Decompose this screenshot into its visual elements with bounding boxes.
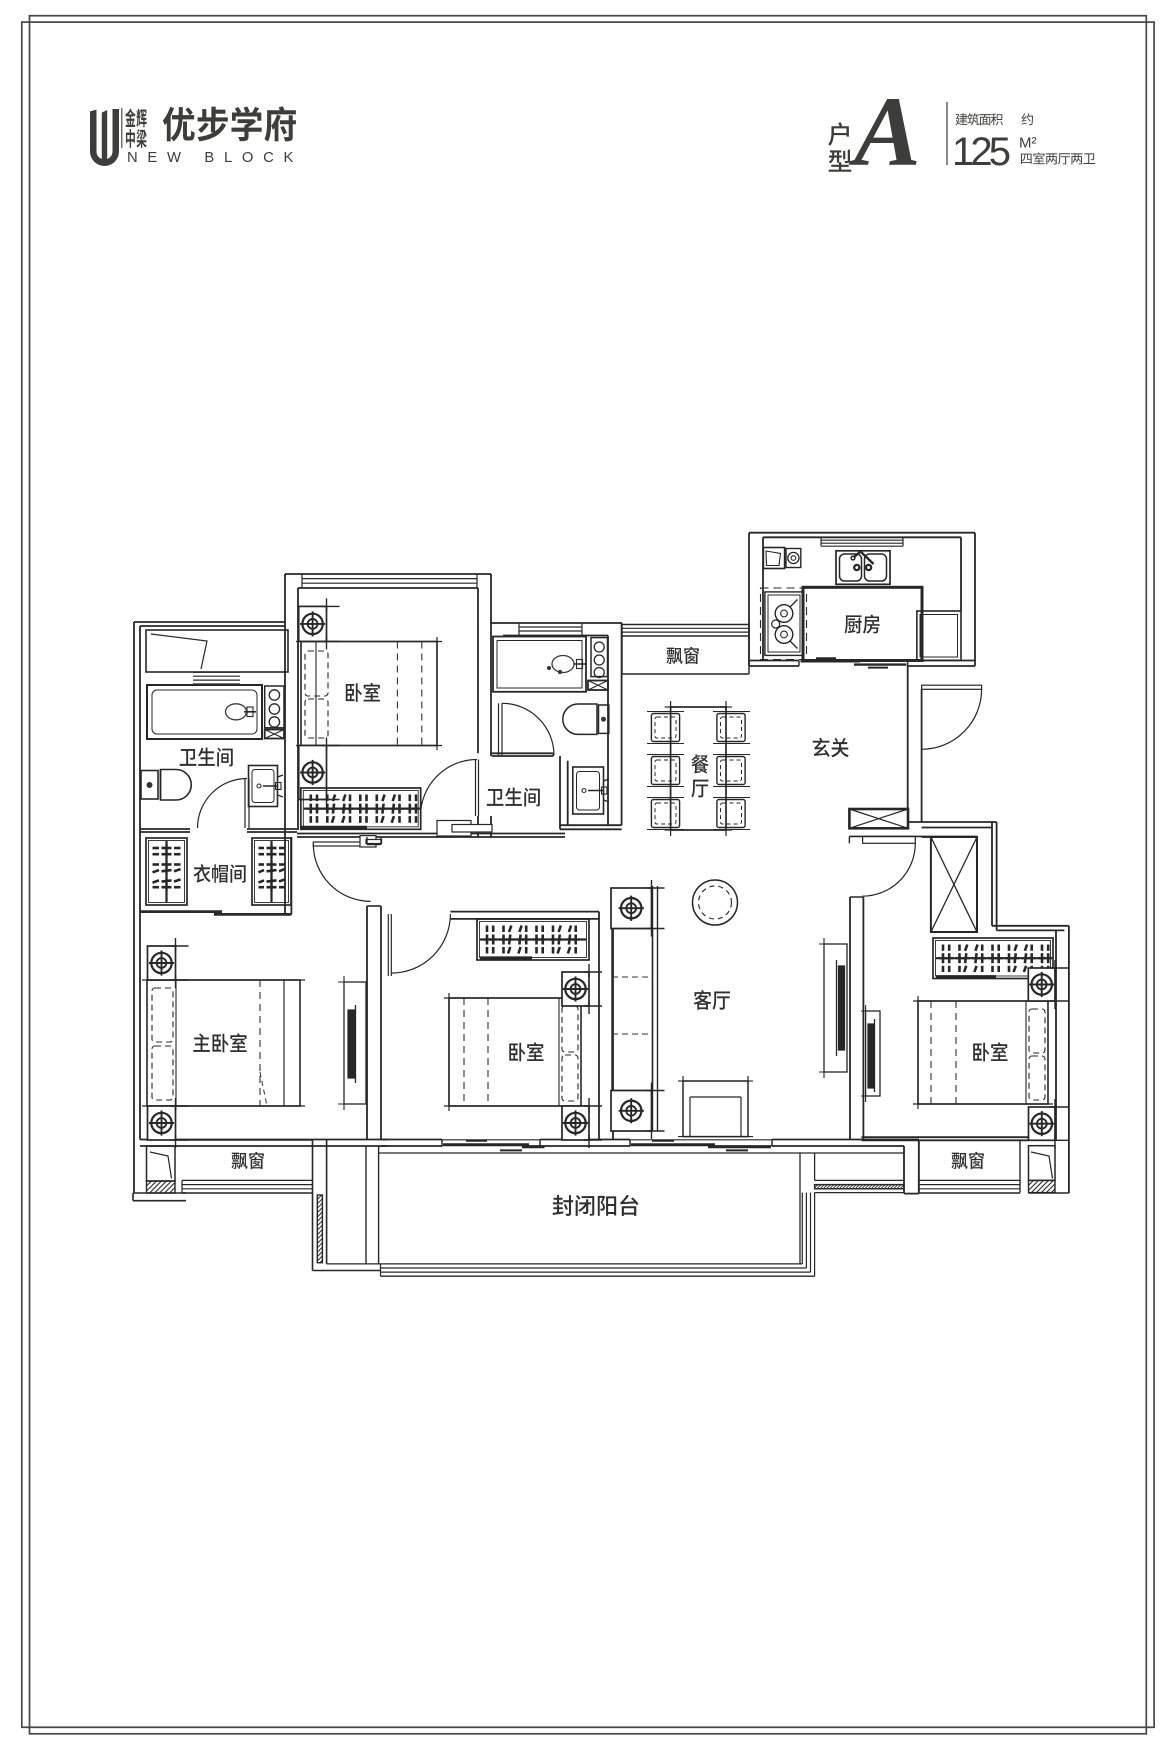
svg-text:M²: M² (1019, 135, 1037, 152)
svg-text:A: A (848, 76, 921, 187)
svg-text:125: 125 (952, 130, 1011, 174)
svg-text:NEW BLOCK: NEW BLOCK (127, 150, 303, 166)
